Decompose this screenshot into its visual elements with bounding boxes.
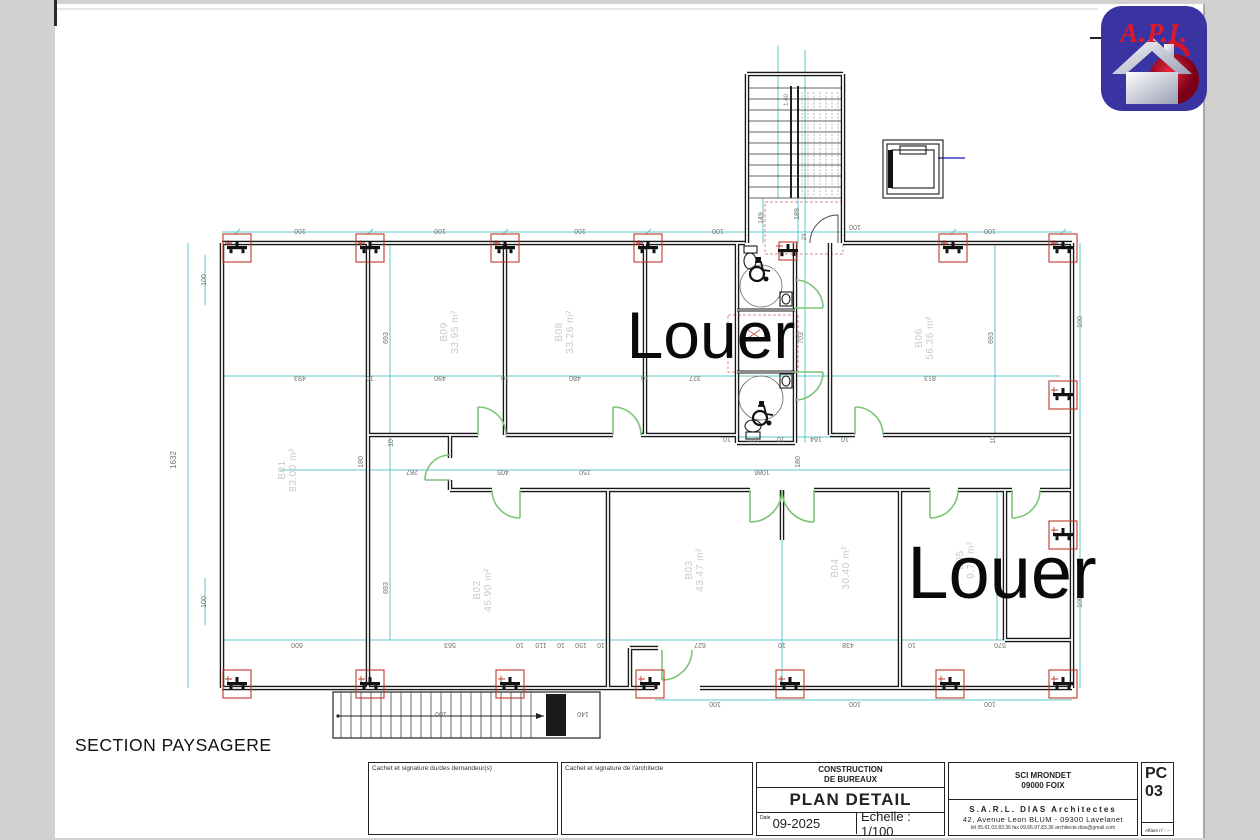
dimension-label: 693 bbox=[383, 332, 390, 344]
dimension-label: 23 bbox=[802, 233, 808, 240]
dimension-label: 100 bbox=[709, 700, 721, 707]
dimension-label: 100 bbox=[574, 227, 586, 234]
dimension-label: 189 bbox=[794, 208, 801, 220]
column-marker bbox=[936, 670, 964, 698]
project-line1: CONSTRUCTION bbox=[818, 765, 882, 775]
dimension-label: 149 bbox=[758, 212, 765, 224]
affaire-number: Affaire n° : – bbox=[1142, 822, 1173, 835]
dimension-label: 100 bbox=[984, 227, 996, 234]
exterior-stair bbox=[333, 692, 600, 738]
dimension-label: 10 bbox=[501, 374, 509, 381]
dimension-label: 100 bbox=[201, 596, 208, 608]
doc-code-box: PC 03 Affaire n° : – bbox=[1141, 762, 1174, 836]
column-marker bbox=[223, 670, 251, 698]
room-label: B0656.36 m² bbox=[914, 316, 936, 360]
dimension-label: 1632 bbox=[169, 451, 178, 469]
api-logo-graphic: A.P.I. bbox=[1100, 6, 1208, 112]
dimension-label: 563 bbox=[444, 641, 456, 648]
dimension-label: 180 bbox=[795, 456, 802, 468]
room-label: B0183.00 m² bbox=[277, 448, 299, 492]
page: B0183.00 m²B0933.95 m²B0833.26 m²B0656.3… bbox=[0, 0, 1260, 840]
date-value: 09-2025 bbox=[773, 816, 821, 831]
dimension-label: 10 bbox=[366, 374, 374, 381]
firm-box: SCI MRONDET 09000 FOIX S.A.R.L. DIAS Arc… bbox=[948, 762, 1138, 836]
room-label: B0430.40 m² bbox=[830, 546, 852, 590]
section-title: SECTION PAYSAGERE bbox=[75, 735, 272, 756]
dimension-label: 110 bbox=[535, 641, 546, 648]
room-label: B0343.47 m² bbox=[684, 548, 706, 592]
dimension-label: 703 bbox=[798, 332, 805, 344]
dimension-label: 627 bbox=[694, 641, 706, 648]
dimension-label: 10 bbox=[516, 641, 524, 648]
column-marker bbox=[223, 234, 251, 262]
column-marker bbox=[776, 670, 804, 698]
doc-code-line1: PC bbox=[1145, 765, 1173, 783]
dimension-label: 100 bbox=[849, 700, 861, 707]
room-label: B0833.26 m² bbox=[554, 310, 576, 354]
dimension-label: 177 bbox=[747, 435, 759, 442]
project-line2: DE BUREAUX bbox=[824, 775, 877, 785]
sheet-frame-marks bbox=[54, 0, 1107, 38]
dimension-labels: 1001001001001001004931049010480103278131… bbox=[169, 94, 1084, 717]
dimension-label: 164 bbox=[810, 435, 822, 442]
wheelchair-icon bbox=[750, 257, 770, 282]
cachet-architecte-box: Cachet et signature de l'architecte bbox=[561, 762, 753, 835]
dimension-label: 10 bbox=[723, 435, 731, 442]
firm-address: 42, Avenue Leon BLUM - 09300 Lavelanet bbox=[963, 815, 1123, 824]
louer-label: Louer bbox=[627, 298, 796, 372]
exterior-stair-landing-fill bbox=[546, 694, 566, 736]
dimension-label: 10 bbox=[597, 641, 605, 648]
dimension-label: 100 bbox=[1077, 316, 1084, 328]
dimension-label: 1.40 bbox=[784, 94, 790, 106]
dimension-label: 10 bbox=[557, 641, 565, 648]
staircase bbox=[749, 86, 841, 198]
logo-house-body bbox=[1126, 72, 1178, 104]
client-line1: SCI MRONDET bbox=[1015, 771, 1071, 781]
logo-text: A.P.I. bbox=[1118, 18, 1188, 48]
dimension-label: 600 bbox=[291, 641, 303, 648]
dimension-label: 10 bbox=[841, 435, 849, 442]
dimension-label: 438 bbox=[842, 641, 854, 648]
dimension-label: 1086 bbox=[754, 468, 770, 475]
dimension-label: 813 bbox=[924, 374, 936, 381]
dimension-label: 493 bbox=[294, 374, 306, 381]
dimension-label: 100 bbox=[434, 227, 446, 234]
wheelchair-icon bbox=[753, 401, 773, 426]
client-name: SCI MRONDET 09000 FOIX bbox=[949, 763, 1137, 800]
dimension-label: 100 bbox=[849, 223, 861, 230]
scale-cell: Echelle : 1/100 bbox=[857, 813, 944, 834]
floor-plan-svg: B0183.00 m²B0933.95 m²B0833.26 m²B0656.3… bbox=[0, 0, 1260, 840]
dimension-label: 490 bbox=[434, 374, 446, 381]
date-cell: Date 09-2025 bbox=[757, 813, 857, 834]
dimension-label: 10 bbox=[641, 374, 649, 381]
dimension-label: 150 bbox=[579, 468, 591, 475]
dimension-label: 180 bbox=[358, 456, 365, 468]
dimension-label: 100 bbox=[435, 710, 447, 717]
column-marker bbox=[636, 670, 664, 698]
column-marker bbox=[939, 234, 967, 262]
client-line2: 09000 FOIX bbox=[1021, 781, 1064, 791]
project-box: CONSTRUCTION DE BUREAUX PLAN DETAIL Date… bbox=[756, 762, 945, 836]
dimension-label: 10 bbox=[990, 436, 997, 444]
dimension-label: 10 bbox=[777, 435, 785, 442]
room-label: B0933.95 m² bbox=[439, 310, 461, 354]
dimension-label: 327 bbox=[689, 374, 701, 381]
project-name: CONSTRUCTION DE BUREAUX bbox=[757, 763, 944, 788]
api-logo: A.P.I. bbox=[1100, 6, 1208, 112]
dimension-label: 570 bbox=[994, 641, 1006, 648]
firm-name: S.A.R.L. DIAS Architectes bbox=[969, 805, 1117, 814]
dimension-label: 10 bbox=[778, 641, 786, 648]
column-marker bbox=[496, 670, 524, 698]
dimension-label: 405 bbox=[497, 468, 509, 475]
room-label: B0245.90 m² bbox=[472, 568, 494, 612]
firm-contact: tél 05.61.03.83.36 fax 09.66.97.83.36 ar… bbox=[971, 825, 1115, 831]
dimension-label: 480 bbox=[569, 374, 581, 381]
dimension-label: 100 bbox=[984, 700, 996, 707]
date-label: Date bbox=[760, 815, 771, 821]
dimension-label: 140 bbox=[577, 710, 589, 717]
cachet-demandeur-box: Cachet et signature du/des demandeur(s) bbox=[368, 762, 558, 835]
dimension-label: 10 bbox=[908, 641, 916, 648]
dimension-label: 100 bbox=[294, 227, 306, 234]
column-marker bbox=[634, 234, 662, 262]
dimension-label: 287 bbox=[406, 468, 418, 475]
dimension-label: 693 bbox=[383, 582, 390, 594]
dimension-label: 100 bbox=[201, 274, 208, 286]
dimension-label: 10 bbox=[388, 439, 395, 447]
doc-code-line2: 03 bbox=[1145, 783, 1173, 801]
elevator bbox=[883, 140, 943, 198]
louer-label: Louer bbox=[907, 531, 1096, 614]
dimension-label: 100 bbox=[712, 227, 724, 234]
dimension-label: 150 bbox=[575, 641, 587, 648]
dimension-label: 693 bbox=[988, 332, 995, 344]
doc-code: PC 03 bbox=[1142, 763, 1173, 800]
